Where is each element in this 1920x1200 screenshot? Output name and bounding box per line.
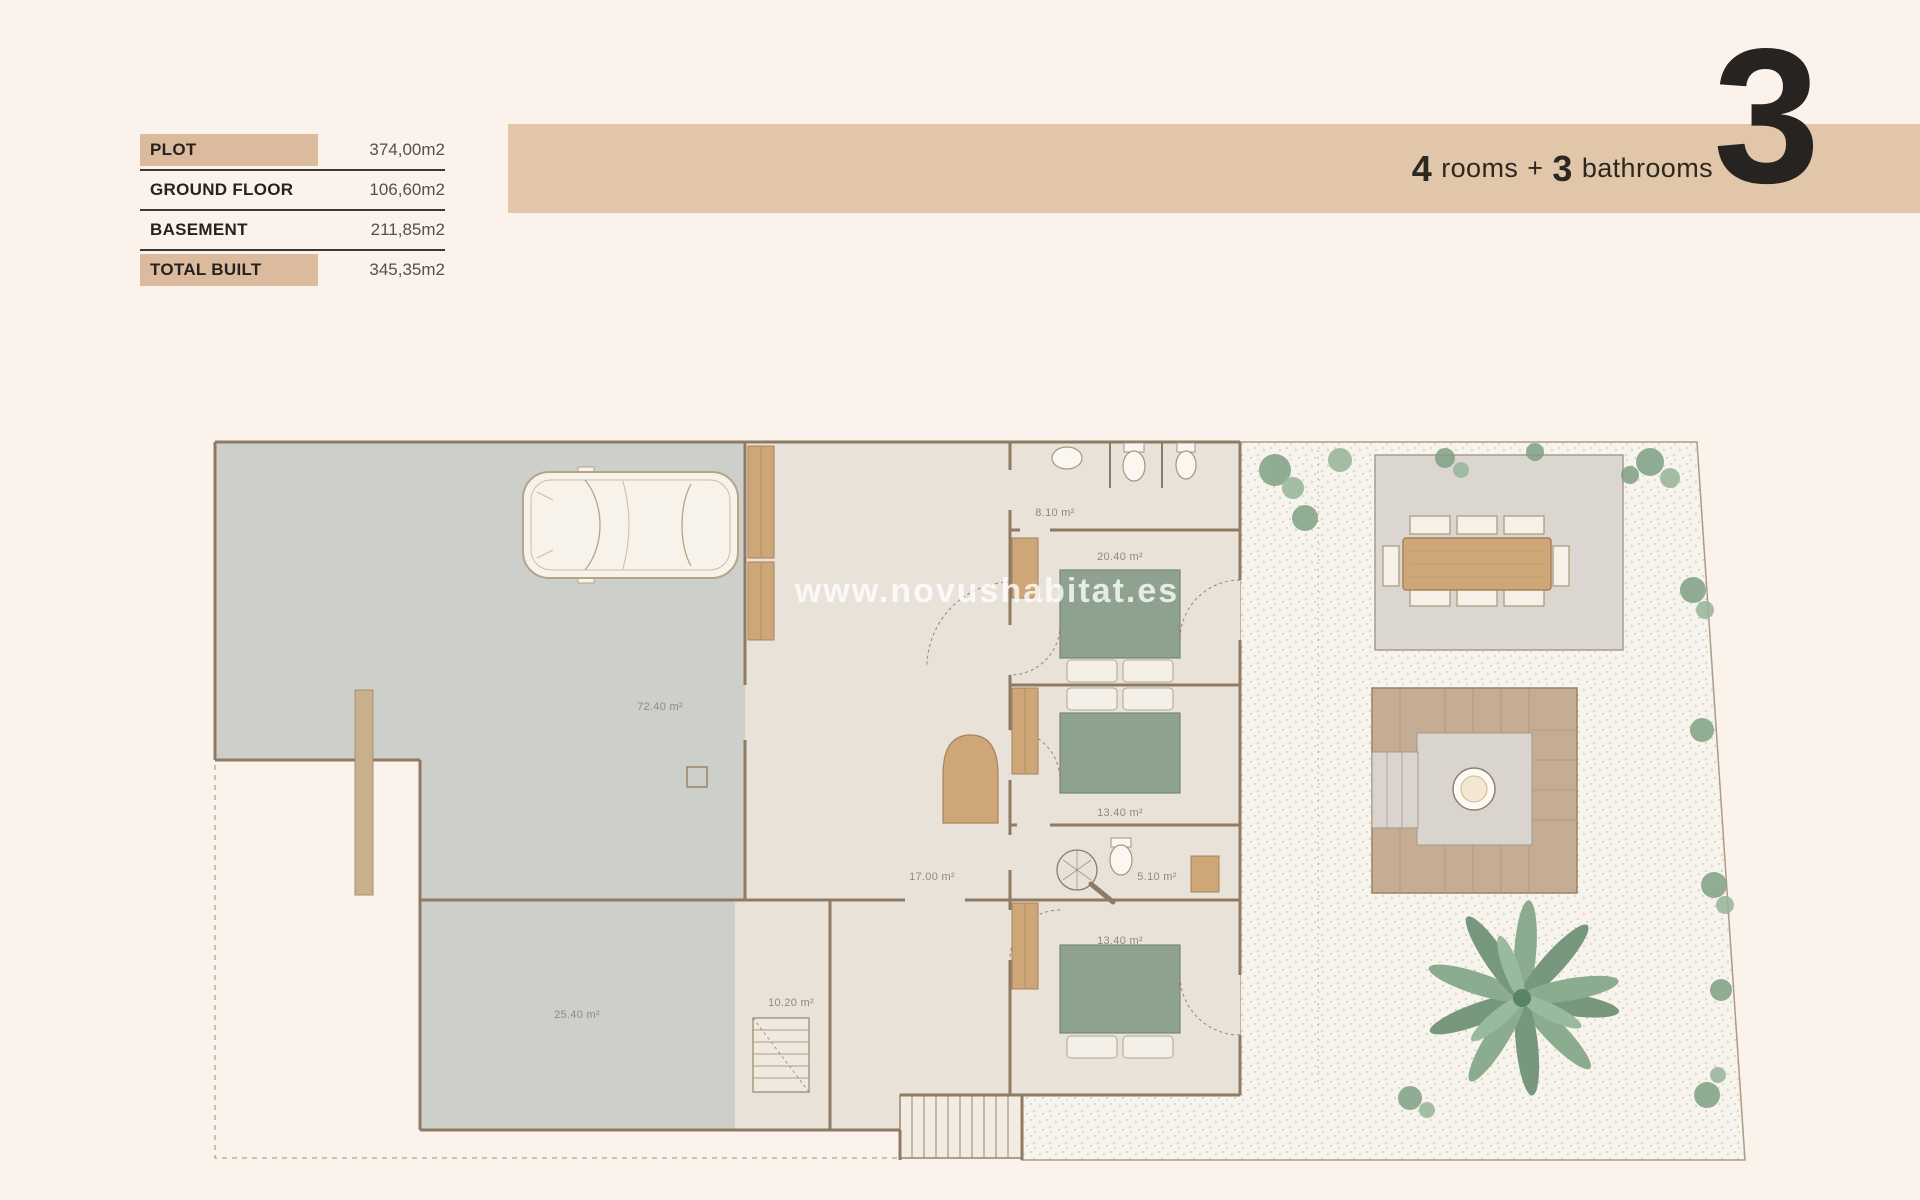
table-row-ground-floor: GROUND FLOOR 106,60m2 [140, 169, 445, 209]
table-row-plot: PLOT 374,00m2 [140, 131, 445, 169]
row-label: BASEMENT [140, 214, 318, 246]
rooms-bathrooms-caption: 4 rooms + 3 bathrooms [1412, 124, 1713, 213]
row-label: GROUND FLOOR [140, 174, 318, 206]
room-label-bathroom-mid: 5.10 m² [1137, 871, 1176, 883]
bathrooms-word: bathrooms [1582, 153, 1713, 184]
watermark-text: www.novushabitat.es [794, 572, 1179, 610]
row-value: 106,60m2 [369, 180, 445, 200]
garage-shelf [355, 690, 373, 895]
row-label: TOTAL BUILT [140, 254, 318, 286]
row-value: 374,00m2 [369, 140, 445, 160]
plus-sign: + [1527, 153, 1543, 184]
room-label-bedroom-3: 13.40 m² [1097, 935, 1143, 947]
hall-cabinets [748, 446, 774, 640]
floor-plan-drawing: 72.40 m² 8.10 m² 20.40 m² 13.40 m² 17.00… [205, 430, 1750, 1170]
room-label-stair-room: 10.20 m² [768, 997, 814, 1009]
bathrooms-count: 3 [1552, 148, 1572, 190]
room-label-bathroom-top: 8.10 m² [1035, 507, 1074, 519]
plan-number: 3 [1713, 20, 1820, 212]
room-label-bedroom-2: 13.40 m² [1097, 807, 1143, 819]
rooms-count: 4 [1412, 148, 1432, 190]
table-row-basement: BASEMENT 211,85m2 [140, 209, 445, 249]
stair-room-floor [735, 900, 830, 1130]
row-value: 211,85m2 [371, 220, 445, 240]
room-label-basement-room: 25.40 m² [554, 1009, 600, 1021]
car [523, 467, 738, 583]
floor-plan-page: PLOT 374,00m2 GROUND FLOOR 106,60m2 BASE… [0, 0, 1920, 1200]
chillout-lounge [1372, 688, 1577, 893]
row-value: 345,35m2 [369, 260, 445, 280]
main-staircase [900, 1095, 1022, 1158]
hall-floor-extension [830, 1095, 900, 1130]
arched-cabinet [943, 735, 998, 823]
dining-set [1383, 516, 1569, 606]
room-label-bedroom-1: 20.40 m² [1097, 551, 1143, 563]
basement-stair [753, 1018, 809, 1092]
room-label-garage: 72.40 m² [637, 701, 683, 713]
table-row-total-built: TOTAL BUILT 345,35m2 [140, 249, 445, 289]
area-summary-table: PLOT 374,00m2 GROUND FLOOR 106,60m2 BASE… [140, 131, 445, 289]
room-label-hallway: 17.00 m² [909, 871, 955, 883]
row-label: PLOT [140, 134, 318, 166]
rooms-word: rooms [1441, 153, 1518, 184]
